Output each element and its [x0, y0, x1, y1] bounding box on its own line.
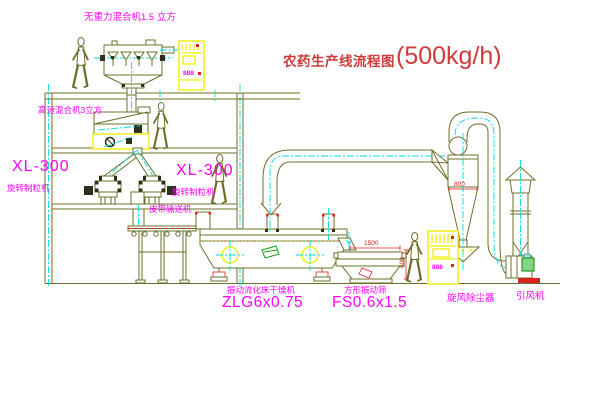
y-chute: [104, 150, 156, 178]
exhaust-duct: [261, 150, 448, 232]
label-high-speed-mixer: 高速混合机3立方: [38, 106, 102, 115]
induced-draft-fan-machine: [506, 254, 540, 283]
person-figure-1: [73, 38, 88, 89]
cabinet-top-display: 888: [183, 70, 194, 77]
label-cyclone: 旋风除尘器: [447, 294, 495, 304]
fluid-bed-dryer-machine: [195, 208, 356, 281]
title-chinese: 农药生产线流程图: [283, 42, 395, 70]
label-fan: 引风机: [516, 292, 545, 302]
sieve-height-dim: 600: [399, 257, 406, 268]
label-sieve-model: FS0.6x1.5: [332, 295, 407, 311]
label-xl300-mid: XL-300: [176, 163, 234, 179]
flow-diagram-canvas: 888: [0, 0, 600, 403]
control-cabinet-right: 888: [428, 231, 458, 284]
label-xl300-left: XL-300: [12, 159, 70, 175]
sieve-width-dim: 1500: [364, 240, 379, 247]
diagram-title: 农药生产线流程图 (500kg/h): [283, 42, 502, 71]
label-granulator-left: 旋转制粒机: [7, 184, 50, 193]
granulator-mid-machine: [131, 176, 176, 204]
cabinet-right-display: 888: [432, 264, 443, 271]
label-dryer-model: ZLG6x0.75: [222, 295, 303, 311]
control-cabinet-top: 888: [179, 41, 204, 90]
label-gravity-mixer: 无重力混合机1.5 立方: [84, 13, 176, 23]
granulator-left-machine: [84, 176, 121, 204]
label-belt-conveyor: 皮带输送机: [149, 205, 192, 214]
cyclone-diameter-dim: 800: [454, 181, 465, 188]
person-figure-4: [407, 233, 421, 282]
label-granulator-mid: 旋转制粒机: [172, 188, 215, 197]
belt-conveyor-machine: [128, 226, 196, 283]
person-figure-2: [154, 102, 168, 149]
gravity-mixer: [94, 40, 178, 96]
title-capacity: (500kg/h): [396, 42, 502, 71]
